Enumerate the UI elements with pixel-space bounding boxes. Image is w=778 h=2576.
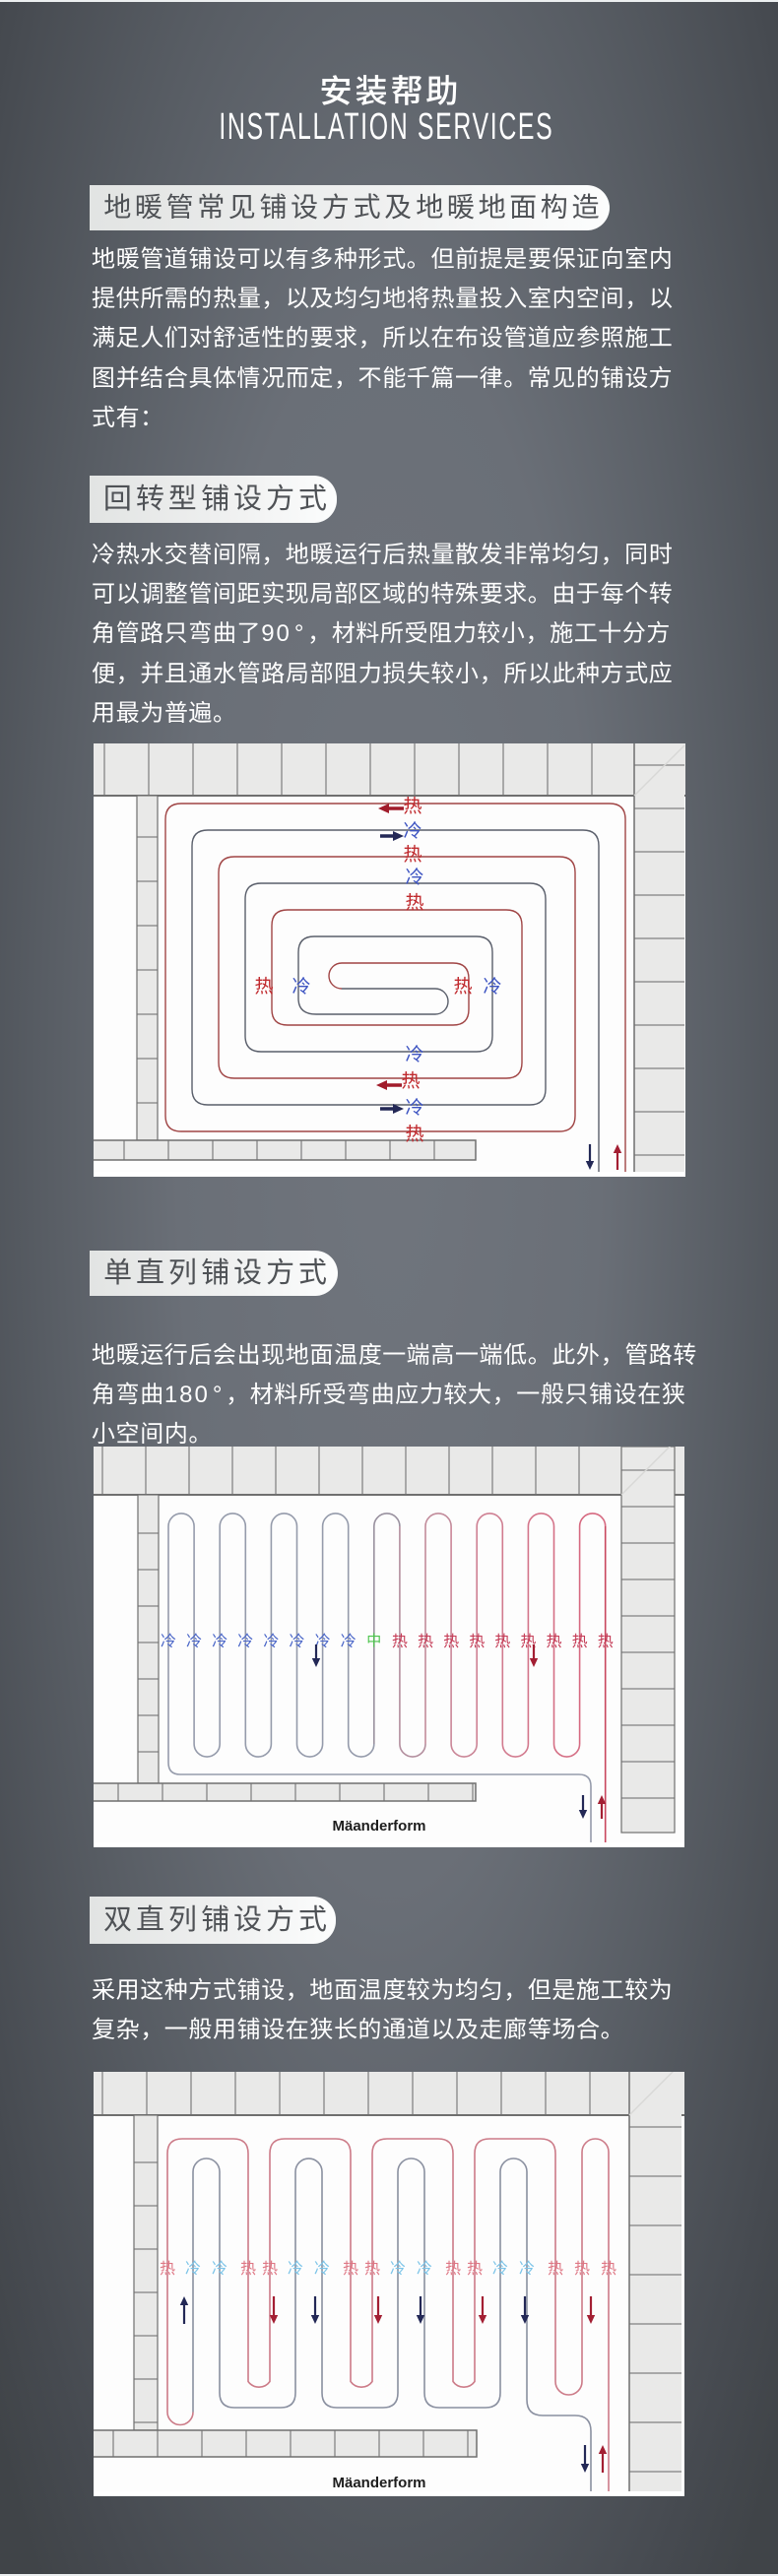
svg-text:冷: 冷 (212, 1628, 227, 1651)
svg-text:热: 热 (240, 2255, 257, 2279)
svg-text:热: 热 (343, 2255, 359, 2279)
svg-text:热: 热 (443, 1628, 460, 1651)
svg-text:冷: 冷 (390, 2255, 406, 2279)
svg-text:冷: 冷 (492, 2255, 508, 2279)
svg-text:热: 热 (494, 1628, 511, 1651)
svg-text:冷: 冷 (403, 816, 421, 843)
svg-text:热: 热 (598, 1628, 615, 1651)
svg-text:热: 热 (160, 2255, 176, 2279)
svg-text:热: 热 (572, 1628, 589, 1651)
svg-text:冷: 冷 (185, 2255, 201, 2279)
svg-text:冷: 冷 (161, 1628, 176, 1651)
svg-text:冷: 冷 (292, 972, 310, 998)
svg-text:热: 热 (418, 1628, 434, 1651)
svg-text:热: 热 (364, 2255, 381, 2279)
svg-text:热: 热 (467, 2255, 484, 2279)
svg-text:热: 热 (469, 1628, 486, 1651)
svg-text:冷: 冷 (288, 2255, 303, 2279)
svg-text:热: 热 (574, 2255, 591, 2279)
svg-text:热: 热 (401, 1066, 420, 1093)
svg-text:热: 热 (405, 1120, 423, 1146)
svg-text:冷: 冷 (405, 1040, 423, 1066)
svg-text:热: 热 (262, 2255, 279, 2279)
svg-text:热: 热 (453, 972, 472, 998)
svg-text:冷: 冷 (483, 972, 501, 998)
svg-text:冷: 冷 (405, 863, 423, 889)
svg-text:热: 热 (601, 2255, 617, 2279)
svg-text:热: 热 (403, 792, 421, 818)
svg-text:冷: 冷 (289, 1628, 304, 1651)
svg-text:热: 热 (392, 1628, 409, 1651)
svg-text:热: 热 (548, 2255, 564, 2279)
svg-text:冷: 冷 (417, 2255, 432, 2279)
svg-text:热: 热 (254, 972, 273, 998)
svg-text:冷: 冷 (341, 1628, 357, 1651)
svg-text:热: 热 (405, 888, 423, 915)
svg-text:中: 中 (366, 1630, 381, 1650)
svg-text:冷: 冷 (237, 1628, 253, 1651)
svg-text:冷: 冷 (263, 1628, 279, 1651)
svg-text:热: 热 (445, 2255, 462, 2279)
svg-text:冷: 冷 (405, 1093, 423, 1120)
svg-text:热: 热 (546, 1628, 562, 1651)
svg-text:Mäanderform: Mäanderform (332, 1818, 425, 1835)
svg-text:Mäanderform: Mäanderform (332, 2475, 425, 2491)
svg-text:冷: 冷 (314, 2255, 330, 2279)
svg-text:冷: 冷 (212, 2255, 227, 2279)
svg-text:冷: 冷 (186, 1628, 202, 1651)
svg-text:冷: 冷 (519, 2255, 535, 2279)
